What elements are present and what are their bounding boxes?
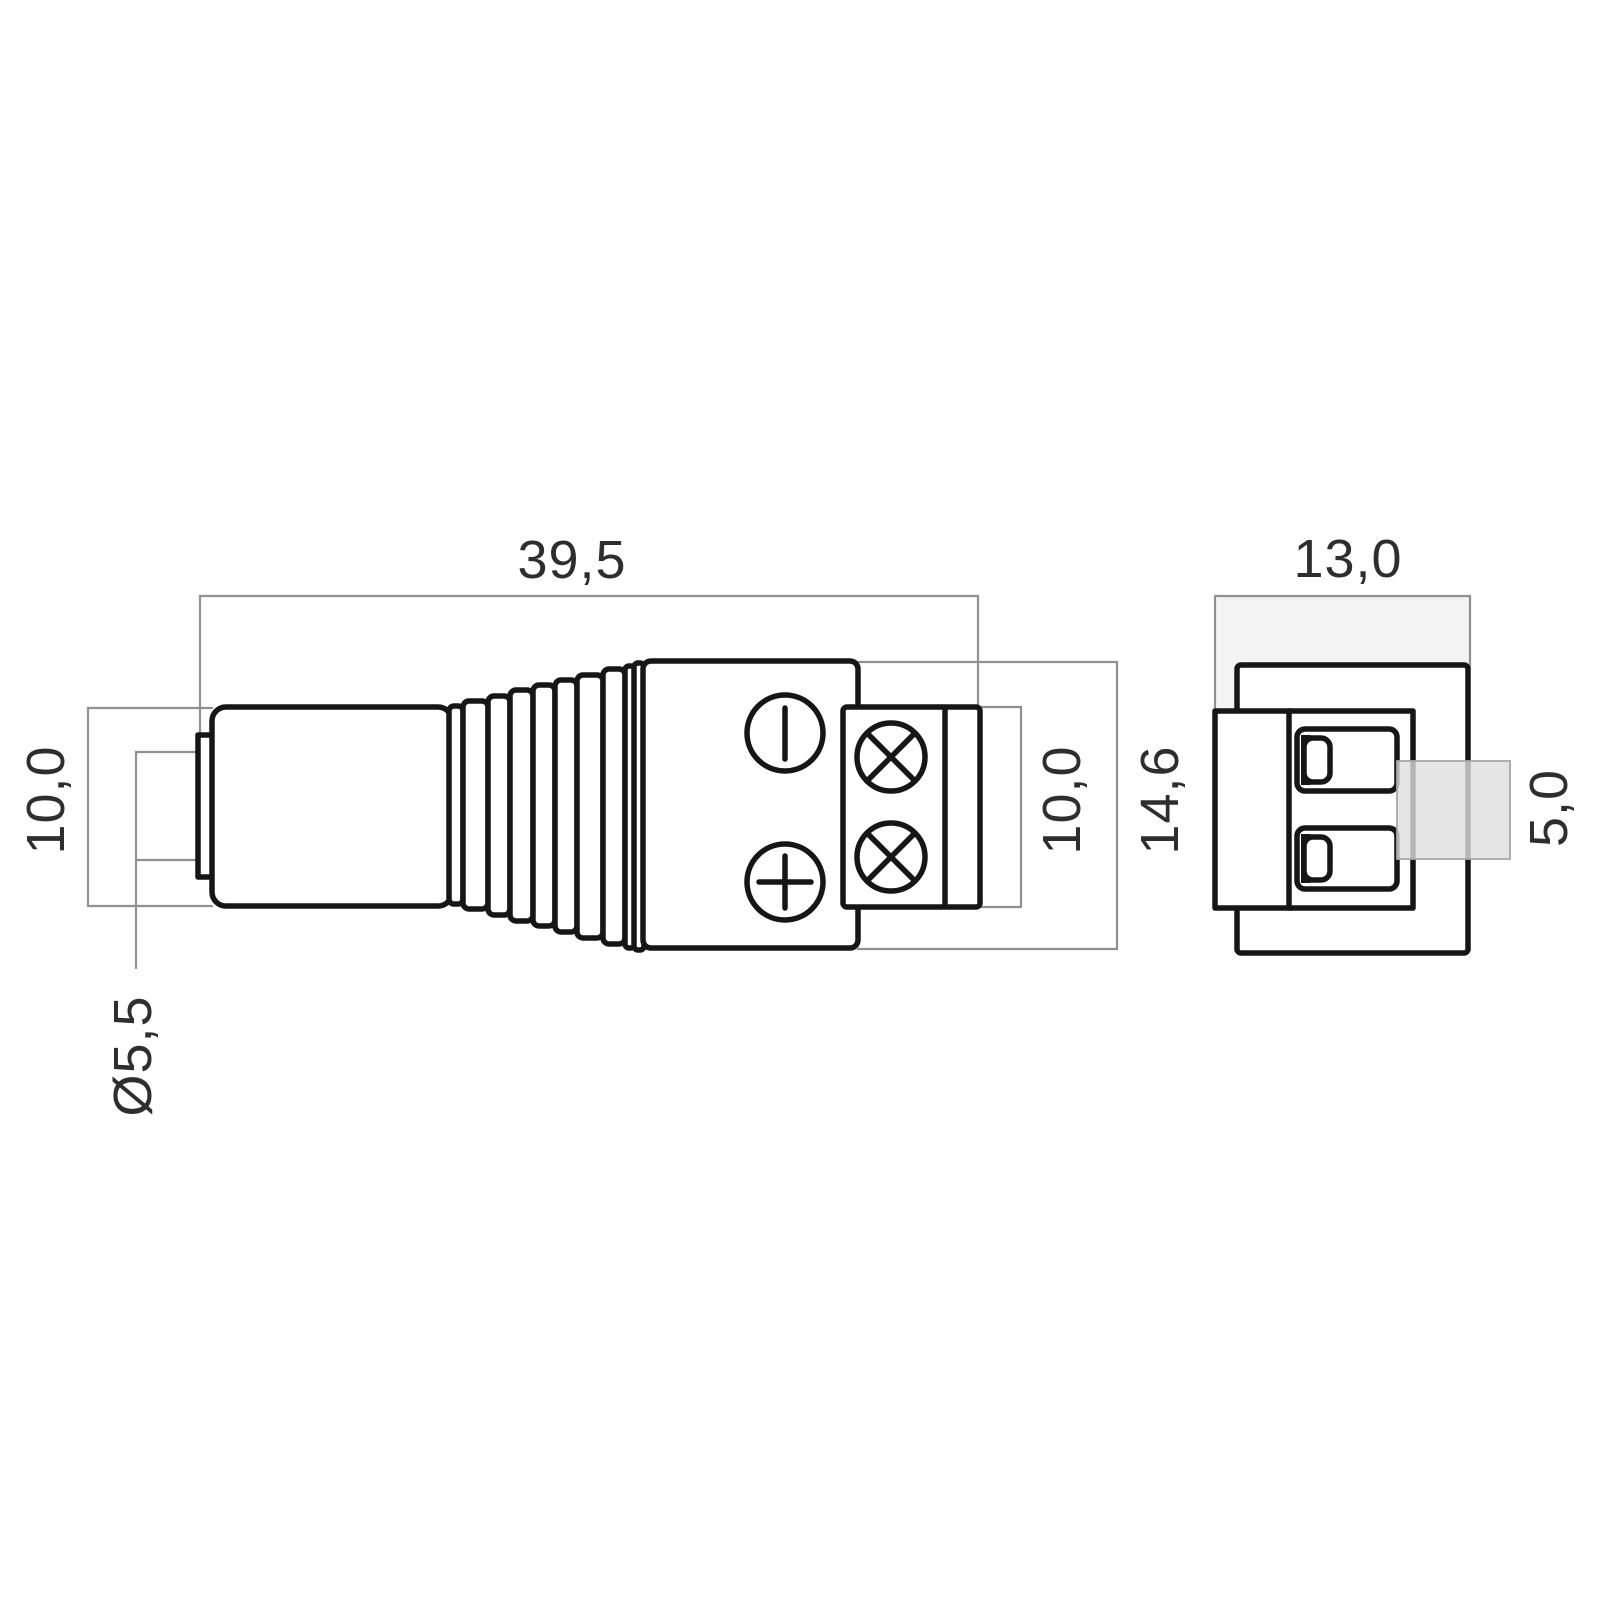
dimension-label: 10,0 [16,745,76,854]
plus-terminal-icon [747,844,823,920]
minus-terminal-icon [747,695,823,771]
technical-drawing: 39,5 10,0 Ø5,5 10,0 14,6 13,0 [0,0,1600,1600]
rib [463,701,488,909]
dimension-label: 10,0 [1032,745,1092,854]
rib [488,696,510,915]
dimension-plug-height-left: 10,0 [16,708,212,906]
dimension-label: 39,5 [517,530,626,590]
dimension-label: 5,0 [1519,769,1579,847]
screw-top-icon [857,723,925,791]
dimension-label: 14,6 [1130,745,1190,854]
rib [603,669,625,944]
clamp-leaf [1304,837,1330,880]
housing-body [643,661,858,948]
dimension-terminal-block-height: 10,0 [980,707,1092,907]
wire-hole-top [1297,729,1397,791]
drawing-canvas: 39,5 10,0 Ø5,5 10,0 14,6 13,0 [0,0,1600,1600]
rib [577,675,603,938]
rib [510,690,533,921]
screw-bottom-icon [857,823,925,891]
wire-hole-bottom [1297,828,1397,889]
rib [533,685,555,926]
side-view [198,661,980,950]
dimension-terminal-pitch: 5,0 [1397,761,1579,859]
dimension-shade [1397,761,1510,859]
strain-relief-ribs [449,663,644,950]
dimension-label: 13,0 [1293,529,1402,589]
rib [555,680,577,932]
dimension-tip-diameter: Ø5,5 [103,752,200,1117]
plug-barrel [212,707,452,906]
dimension-label: Ø5,5 [103,995,163,1116]
side-flange [1215,711,1291,908]
clamp-leaf [1304,738,1330,782]
